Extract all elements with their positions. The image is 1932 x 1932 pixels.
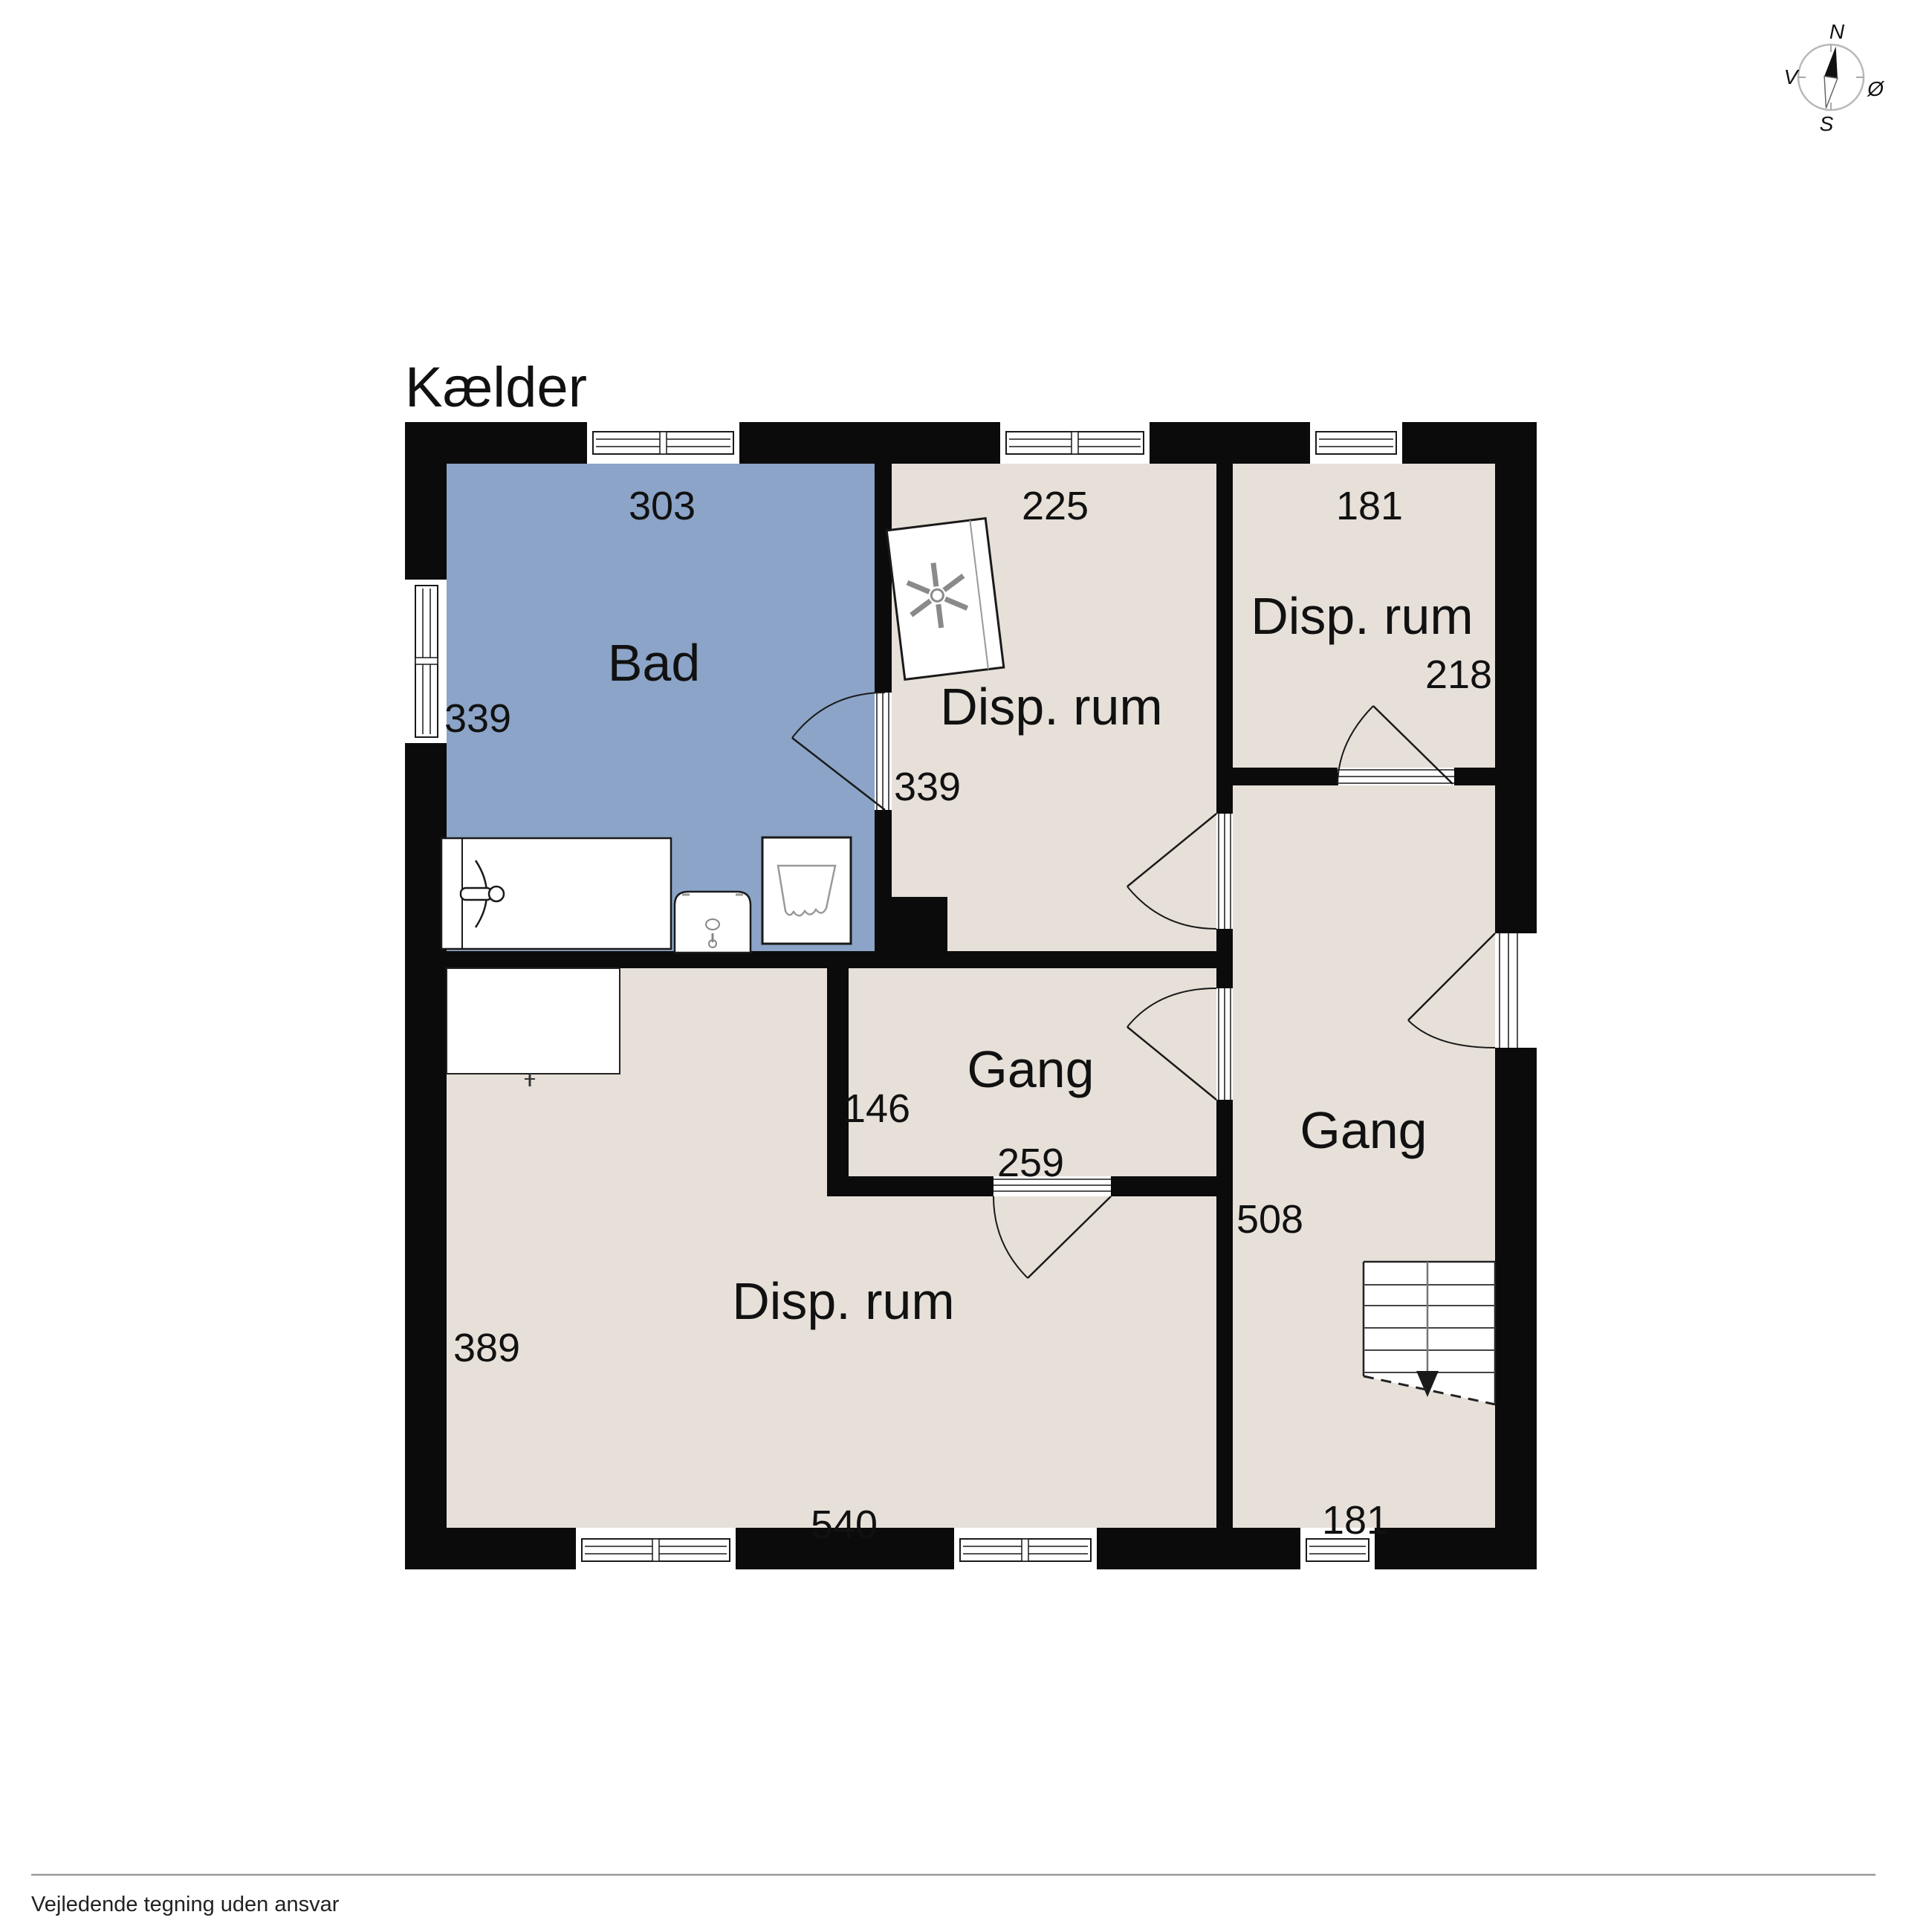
bathtub-icon	[441, 838, 671, 949]
page-title: Kælder	[405, 356, 587, 419]
dim-gang-middle-width: 259	[997, 1141, 1064, 1185]
compass-east-label: Ø	[1867, 77, 1885, 100]
footer: Vejledende tegning uden ansvar	[31, 1875, 1876, 1916]
compass-west-label: V	[1784, 65, 1800, 88]
room-label-disp-top-right: Disp. rum	[1251, 587, 1473, 645]
dim-disp-top-middle-depth: 339	[894, 765, 961, 809]
dim-gang-right-width: 181	[1322, 1498, 1389, 1543]
dim-disp-top-right-width: 181	[1336, 484, 1403, 528]
wall-bad-right-lower	[875, 810, 892, 951]
compass-needle-icon	[1820, 45, 1843, 109]
room-label-gang-middle: Gang	[967, 1040, 1094, 1098]
wall-disp-topright-bottom-left	[1233, 768, 1338, 785]
window-bad-left	[405, 580, 447, 743]
room-label-disp-top-middle: Disp. rum	[940, 678, 1162, 736]
dim-gang-middle-depth: 146	[843, 1086, 910, 1131]
dim-disp-bottom-width: 540	[811, 1503, 878, 1547]
dim-disp-top-middle-width: 225	[1022, 484, 1089, 528]
window-bad-top	[587, 422, 739, 464]
dim-disp-top-right-depth: 218	[1425, 652, 1492, 697]
toilet-icon	[675, 892, 751, 953]
dim-bad-width: 303	[629, 484, 696, 528]
floor-plan: Kælder	[0, 0, 1932, 1932]
wall-gang-middle-left	[827, 951, 849, 1196]
window-disp-top-middle	[1000, 422, 1150, 464]
wall-disp-topright-bottom-right	[1454, 768, 1495, 785]
footer-disclaimer: Vejledende tegning uden ansvar	[31, 1893, 340, 1916]
compass-needle-north	[1824, 45, 1842, 78]
room-label-disp-bottom: Disp. rum	[732, 1272, 954, 1330]
window-disp-bottom-right	[954, 1528, 1097, 1569]
compass-south-label: S	[1820, 112, 1834, 135]
floor-plan-page: Kælder	[0, 0, 1932, 1932]
dim-bad-depth: 339	[444, 696, 511, 741]
room-label-bad: Bad	[608, 634, 701, 692]
wall-gang-middle-bottom-left	[827, 1176, 993, 1196]
wall-vertical-right-pier	[1216, 929, 1233, 988]
wall-vertical-right-upper	[1216, 464, 1233, 814]
compass-icon: N S V Ø	[1784, 20, 1885, 135]
compass-needle-south	[1820, 77, 1838, 109]
fan-unit-icon	[886, 519, 1004, 680]
wall-vertical-right-lower	[1216, 1100, 1233, 1528]
compass-north-label: N	[1829, 20, 1845, 43]
sink-icon	[762, 837, 851, 944]
wall-gang-middle-bottom-right	[1111, 1176, 1216, 1196]
room-label-gang-right: Gang	[1300, 1101, 1427, 1159]
counter-icon	[447, 968, 620, 1086]
window-disp-bottom-left	[576, 1528, 736, 1569]
dim-gang-right-depth: 508	[1236, 1197, 1303, 1242]
dim-disp-bottom-depth: 389	[453, 1326, 520, 1370]
wall-step	[892, 897, 947, 951]
window-disp-top-right	[1310, 422, 1402, 464]
wall-bad-right-upper	[875, 464, 892, 693]
